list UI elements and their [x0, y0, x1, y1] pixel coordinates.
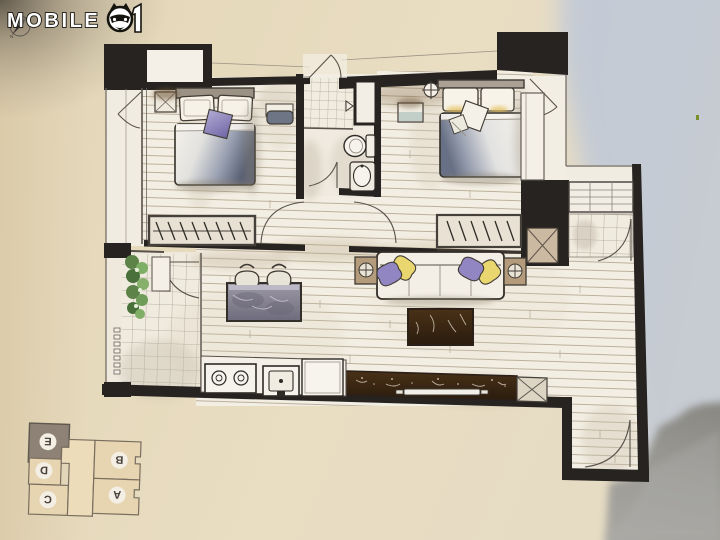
svg-text:A: A [113, 488, 121, 500]
svg-text:C: C [44, 493, 52, 505]
svg-text:E: E [44, 435, 52, 447]
svg-text:N: N [10, 34, 13, 39]
svg-text:B: B [115, 453, 123, 465]
svg-text:MOBILE: MOBILE [7, 10, 100, 32]
svg-text:D: D [40, 463, 48, 475]
